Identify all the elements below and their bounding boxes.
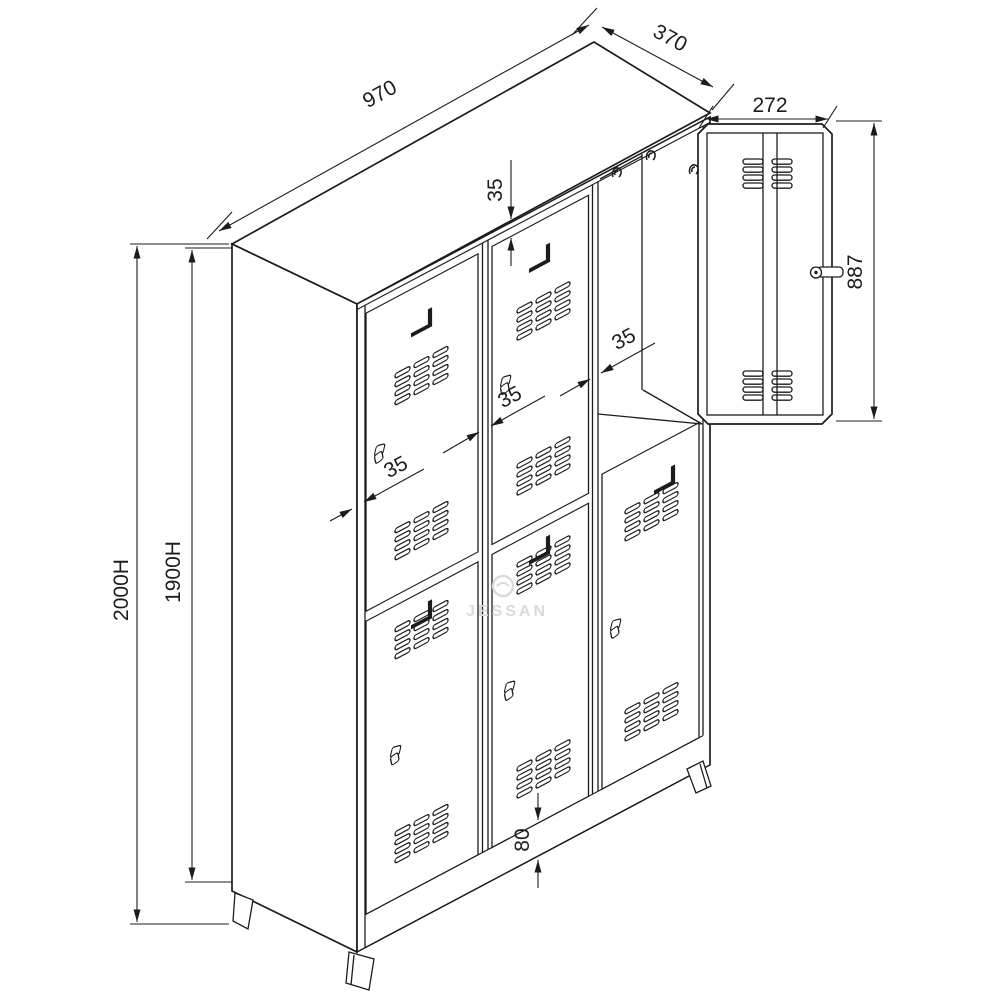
dim-door-width: 272 — [699, 94, 837, 128]
detached-door-panel — [698, 124, 843, 424]
cabinet-left-side-face — [232, 244, 357, 952]
dim-body-height-label: 1900H — [162, 541, 185, 603]
dim-top-width-label: 970 — [359, 76, 401, 113]
dim-door-width-label: 272 — [752, 94, 787, 117]
dim-plinth-height-label: 80 — [511, 828, 534, 851]
watermark-text: JESSAN — [466, 603, 548, 620]
foot-front-left — [346, 952, 374, 990]
locker-dimension-drawing: 970 370 272 887 2000H — [0, 0, 1000, 1000]
dim-overall-height-label: 2000H — [110, 559, 133, 621]
dim-door-height-label: 887 — [844, 254, 867, 289]
dim-top-depth-label: 370 — [649, 20, 691, 57]
foot-back-left — [233, 893, 253, 929]
door-latch-icon — [811, 267, 844, 278]
dim-gap-top-label: 35 — [484, 178, 507, 201]
drawing-canvas: 970 370 272 887 2000H — [0, 0, 1000, 1000]
dim-body-height: 1900H — [162, 248, 232, 882]
